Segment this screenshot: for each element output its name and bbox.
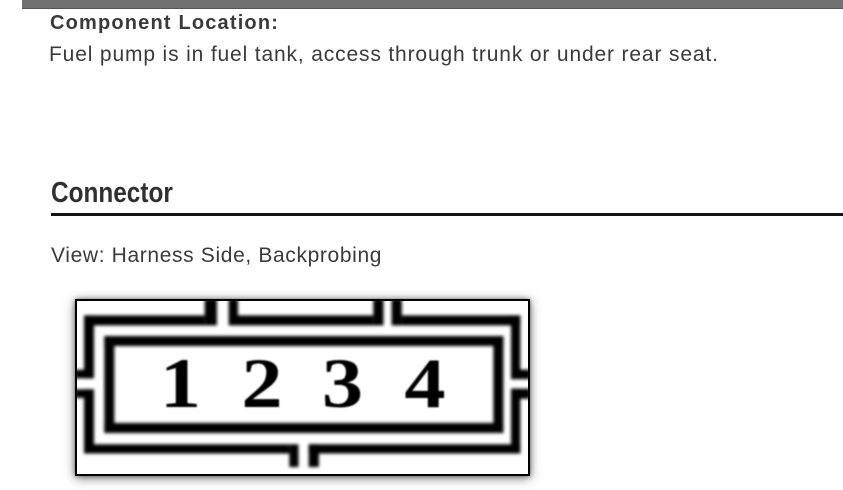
svg-text:4: 4 xyxy=(404,343,445,422)
svg-text:1: 1 xyxy=(160,343,201,422)
svg-text:3: 3 xyxy=(322,343,363,422)
svg-text:2: 2 xyxy=(241,343,282,422)
